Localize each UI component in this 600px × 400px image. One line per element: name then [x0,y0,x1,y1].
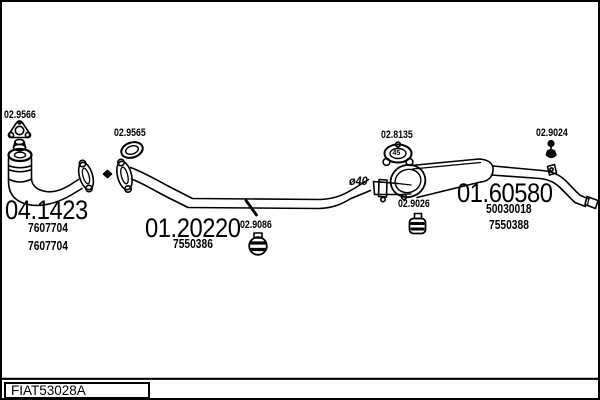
centre-flange [114,159,135,192]
part-ref-front-pipe-1: 7607704 [28,221,68,235]
part-ref-rear-muffler-2: 7550388 [489,218,529,232]
centre-pipe [131,168,371,209]
seal-ring-icon [119,139,145,160]
rear-mount-icon [547,141,557,158]
part-ref-rear-muffler-1: 50030018 [486,202,532,216]
tailpipe-bracket [548,165,557,176]
centre-mount-icon [249,233,267,255]
exhaust-diagram-page: 02.9566 02.9565 02.9086 02.8135 02.9026 … [0,0,600,400]
muffler-mount-icon [410,214,426,234]
drawing-code: FIAT53028A [11,383,86,398]
pipe-diameter-annotation: ø40 [349,174,368,188]
part-ref-front-pipe-2: 7607704 [28,239,68,253]
tailpipe-tip [585,197,598,209]
part-ref-centre-pipe: 7550386 [173,237,213,251]
front-flange [76,160,96,191]
front-gasket-icon [8,121,30,138]
part-code-centre-mount: 02.9086 [240,219,272,231]
part-code-seal-ring: 02.9565 [114,127,146,139]
part-code-clamp: 02.8135 [381,129,413,141]
part-code-rear-mount: 02.9024 [536,127,568,139]
part-code-muffler-mount: 02.9026 [398,198,430,210]
part-code-front-gasket: 02.9566 [4,109,36,121]
gasket-diamond-icon [104,171,112,178]
clamp-size-annotation: 45 [393,150,401,157]
drawing-code-box: FIAT53028A [4,382,150,399]
